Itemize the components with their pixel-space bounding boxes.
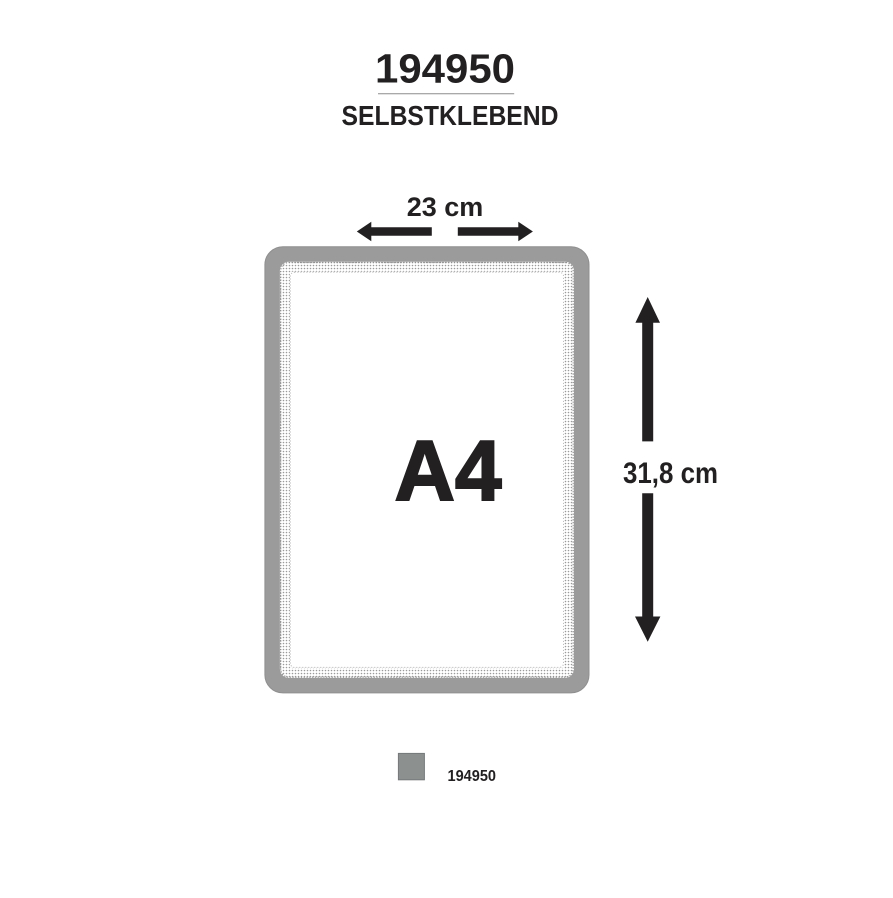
svg-text:A4: A4: [395, 424, 502, 519]
svg-text:194950: 194950: [375, 46, 515, 92]
svg-text:23 cm: 23 cm: [407, 192, 484, 222]
svg-text:194950: 194950: [448, 768, 497, 785]
svg-text:SELBSTKLEBEND: SELBSTKLEBEND: [342, 100, 559, 131]
svg-text:31,8 cm: 31,8 cm: [623, 457, 718, 490]
